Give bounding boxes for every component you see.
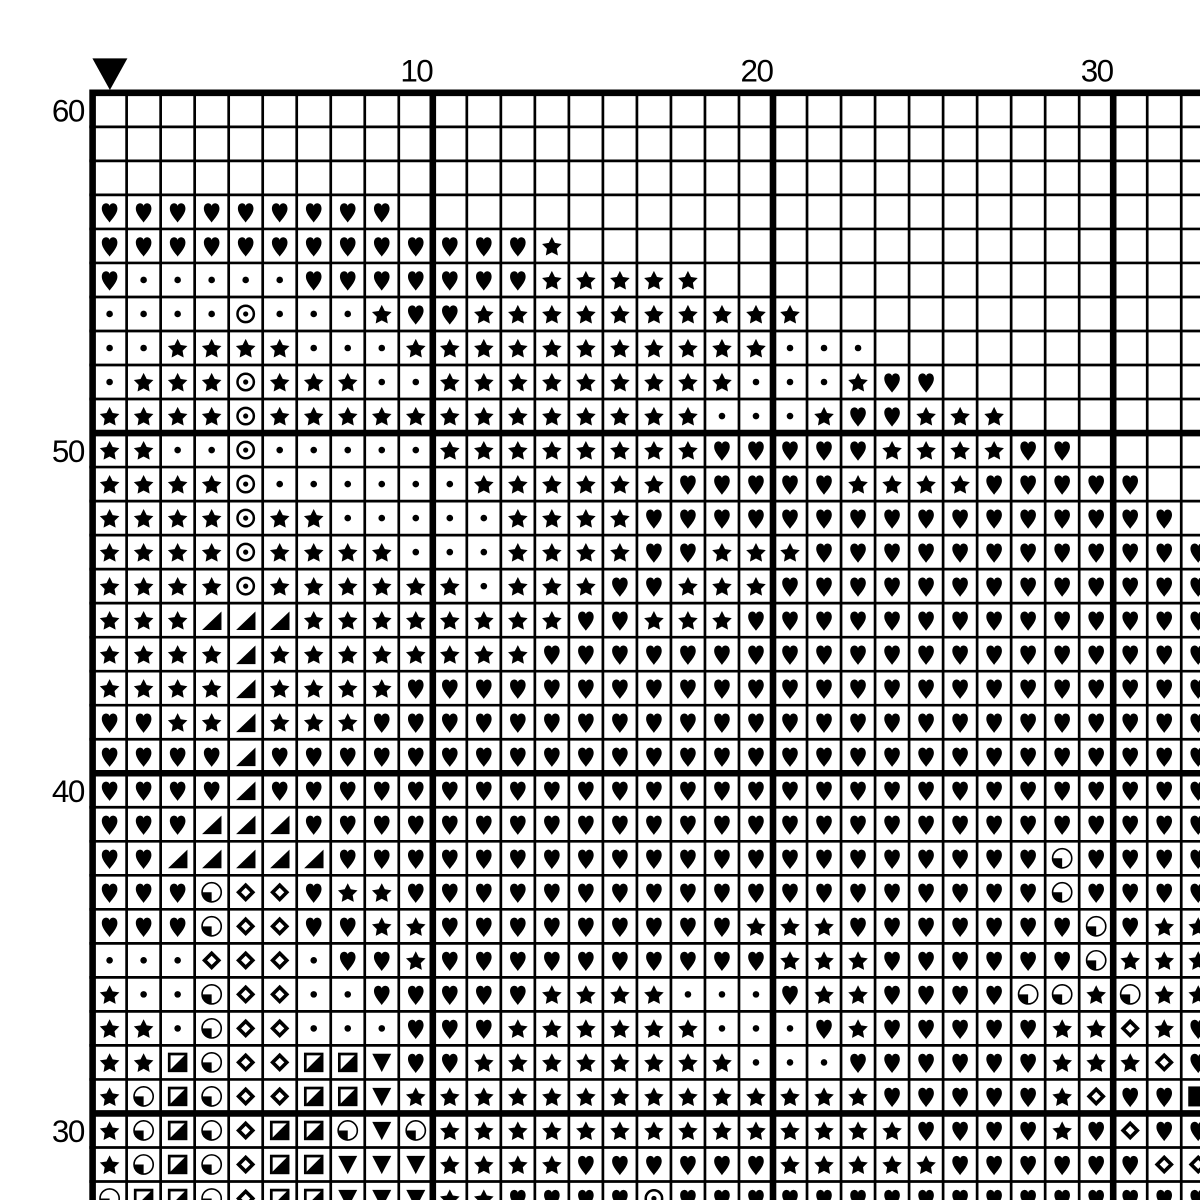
svg-text:20: 20: [741, 54, 774, 89]
svg-text:60: 60: [52, 94, 85, 129]
svg-text:30: 30: [52, 1114, 85, 1149]
svg-text:40: 40: [52, 774, 85, 809]
svg-text:30: 30: [1081, 54, 1114, 89]
svg-text:10: 10: [400, 54, 433, 89]
svg-text:50: 50: [52, 434, 85, 469]
